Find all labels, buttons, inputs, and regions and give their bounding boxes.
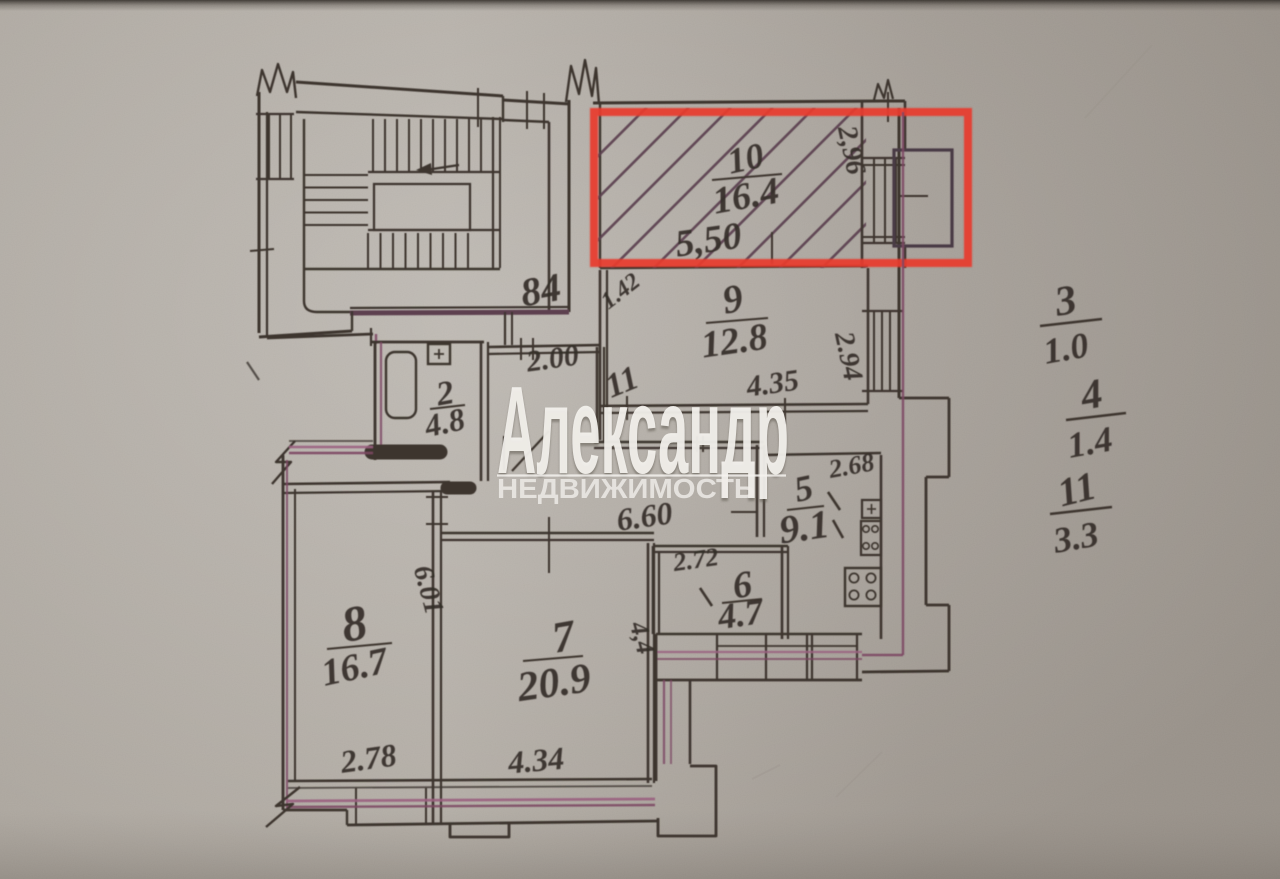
svg-text:4.7: 4.7 xyxy=(714,591,767,637)
svg-text:1.4: 1.4 xyxy=(1064,419,1115,466)
svg-text:4.34: 4.34 xyxy=(506,740,566,781)
svg-text:НЕДВИЖИМОСТЬ: НЕДВИЖИМОСТЬ xyxy=(497,473,755,504)
svg-text:3.3: 3.3 xyxy=(1049,514,1101,561)
svg-text:84: 84 xyxy=(517,264,564,315)
svg-text:9.1: 9.1 xyxy=(776,501,832,553)
svg-text:1.0: 1.0 xyxy=(1040,325,1091,372)
